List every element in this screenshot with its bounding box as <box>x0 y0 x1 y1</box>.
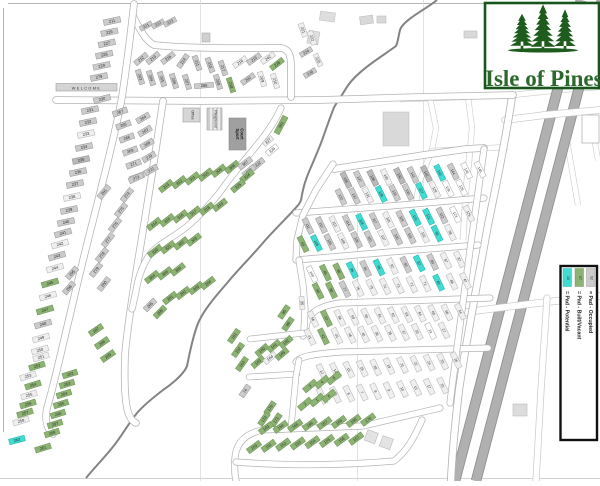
svg-text:Playground: Playground <box>214 110 218 127</box>
svg-text:Office: Office <box>191 110 195 119</box>
svg-text:16: 16 <box>566 276 570 280</box>
svg-text:= Pad - Built/Vacant: = Pad - Built/Vacant <box>576 291 582 340</box>
svg-text:92: 92 <box>590 276 594 280</box>
svg-text:285: 285 <box>200 83 208 89</box>
svg-text:Sport: Sport <box>235 129 240 141</box>
svg-text:Isle of Pines: Isle of Pines <box>485 66 600 91</box>
svg-text:WELCOME: WELCOME <box>72 87 101 91</box>
svg-text:57: 57 <box>578 276 582 280</box>
svg-text:= Pad - Potential: = Pad - Potential <box>564 291 570 332</box>
svg-text:Court: Court <box>240 128 245 140</box>
svg-text:= Pad - Occupied: = Pad - Occupied <box>587 291 593 333</box>
